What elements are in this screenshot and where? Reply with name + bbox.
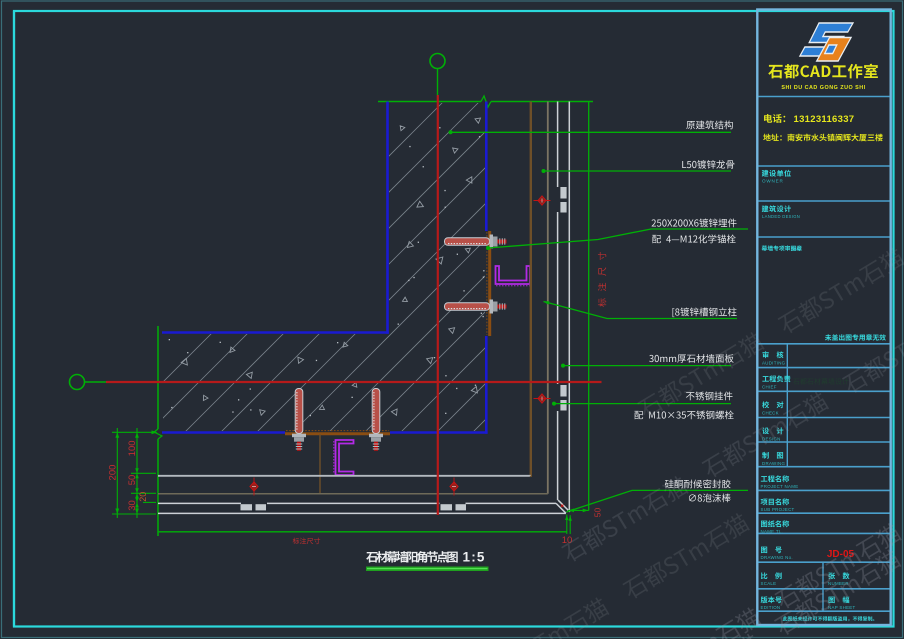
svg-text:OWNER: OWNER [762,179,784,184]
svg-text:NAME TL.: NAME TL. [761,529,784,534]
svg-text:EDITION: EDITION [761,605,781,610]
svg-text:CHECK: CHECK [762,411,779,416]
svg-text:50: 50 [127,475,138,486]
svg-text:DRAWING: DRAWING [762,461,785,466]
svg-text:SCALE: SCALE [761,581,777,586]
svg-text:SHI DU CAD GONG ZUO SHI: SHI DU CAD GONG ZUO SHI [781,85,865,91]
svg-text:20: 20 [138,492,148,502]
svg-text:50: 50 [593,508,603,518]
svg-text:30: 30 [127,500,138,511]
svg-text:100: 100 [127,440,138,456]
svg-text:(seal): (seal) [791,247,801,251]
svg-text:1:5: 1:5 [463,550,486,565]
svg-text:DRAWING No.: DRAWING No. [761,555,793,560]
svg-text:13123116337: 13123116337 [794,114,855,125]
svg-text:LANDED DESIGN: LANDED DESIGN [762,214,800,219]
svg-text:200: 200 [108,465,119,481]
svg-text:AUDITING: AUDITING [762,361,786,366]
svg-text:CHIEF: CHIEF [762,385,777,390]
svg-text:NAP SHEET: NAP SHEET [828,605,856,610]
svg-text:SUB PROJECT: SUB PROJECT [761,507,795,512]
svg-text:PROJECT NAME: PROJECT NAME [761,484,799,489]
